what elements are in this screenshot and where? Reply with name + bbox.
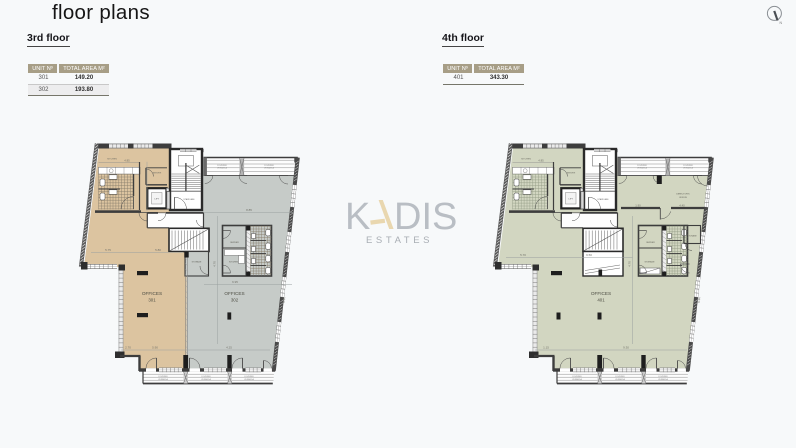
svg-text:VERANDA: VERANDA bbox=[637, 167, 648, 170]
svg-text:VERANDA: VERANDA bbox=[201, 378, 211, 381]
svg-text:5.80: 5.80 bbox=[155, 248, 161, 252]
svg-text:DIRECTOR'S: DIRECTOR'S bbox=[676, 193, 690, 195]
svg-text:VERANDA: VERANDA bbox=[158, 378, 168, 381]
svg-text:5.75: 5.75 bbox=[105, 248, 111, 252]
svg-text:301: 301 bbox=[148, 298, 156, 303]
svg-text:4.85: 4.85 bbox=[538, 158, 544, 162]
svg-text:STORAGE: STORAGE bbox=[687, 234, 697, 237]
svg-text:COVERED: COVERED bbox=[201, 376, 211, 378]
svg-text:COVERED: COVERED bbox=[264, 165, 275, 167]
svg-text:COVERED: COVERED bbox=[572, 376, 582, 378]
svg-text:4.70: 4.70 bbox=[213, 261, 217, 267]
svg-text:COVERED: COVERED bbox=[244, 376, 254, 378]
svg-text:VERANDA: VERANDA bbox=[572, 378, 582, 381]
svg-text:STAIRCASE: STAIRCASE bbox=[597, 198, 609, 201]
svg-text:4.70: 4.70 bbox=[628, 261, 632, 267]
svg-text:VERANDA: VERANDA bbox=[217, 167, 228, 170]
svg-text:LIFT: LIFT bbox=[569, 198, 574, 200]
svg-text:VERANDA: VERANDA bbox=[683, 167, 694, 170]
svg-text:KITCHEN: KITCHEN bbox=[107, 158, 117, 160]
svg-text:SERVER: SERVER bbox=[230, 242, 239, 244]
svg-text:302: 302 bbox=[231, 298, 239, 303]
svg-text:4.40: 4.40 bbox=[679, 204, 685, 208]
svg-text:VERANDA: VERANDA bbox=[264, 167, 275, 170]
svg-text:VERANDA: VERANDA bbox=[615, 378, 625, 381]
svg-text:6.90: 6.90 bbox=[697, 296, 702, 303]
svg-text:1.90: 1.90 bbox=[635, 204, 641, 208]
svg-text:VERANDA: VERANDA bbox=[244, 378, 254, 381]
svg-text:COVERED: COVERED bbox=[217, 165, 228, 167]
svg-text:COVERED: COVERED bbox=[637, 165, 648, 167]
svg-text:5.90: 5.90 bbox=[152, 346, 158, 350]
svg-text:COVERED: COVERED bbox=[683, 165, 694, 167]
svg-text:COVERED: COVERED bbox=[615, 376, 625, 378]
svg-text:6.95: 6.95 bbox=[232, 280, 238, 284]
svg-text:STAIRCASE: STAIRCASE bbox=[183, 198, 195, 201]
svg-text:2.70: 2.70 bbox=[125, 346, 131, 350]
svg-text:1.15: 1.15 bbox=[543, 346, 549, 350]
svg-text:KITCHEN: KITCHEN bbox=[521, 158, 531, 160]
svg-text:SERVER: SERVER bbox=[567, 173, 576, 175]
svg-text:6.90: 6.90 bbox=[282, 296, 287, 303]
svg-text:SERVER: SERVER bbox=[646, 242, 655, 244]
svg-text:COVERED: COVERED bbox=[658, 376, 668, 378]
svg-text:9.30: 9.30 bbox=[623, 346, 629, 350]
svg-text:OFFICES: OFFICES bbox=[224, 291, 244, 296]
svg-text:STORAGE: STORAGE bbox=[644, 261, 655, 264]
svg-text:COVERED: COVERED bbox=[158, 376, 168, 378]
svg-text:9.50: 9.50 bbox=[586, 253, 592, 257]
svg-text:8.85: 8.85 bbox=[246, 208, 252, 212]
svg-text:LIFT: LIFT bbox=[155, 198, 160, 200]
svg-text:KITCHEN: KITCHEN bbox=[229, 262, 239, 264]
svg-text:OFFICE: OFFICE bbox=[679, 197, 688, 199]
svg-text:STORAGE: STORAGE bbox=[192, 260, 202, 263]
svg-text:VERANDA: VERANDA bbox=[658, 378, 668, 381]
svg-text:401: 401 bbox=[597, 298, 605, 303]
svg-text:SERVER: SERVER bbox=[153, 173, 162, 175]
svg-text:5.70: 5.70 bbox=[520, 253, 526, 257]
svg-text:OFFICES: OFFICES bbox=[591, 291, 611, 296]
svg-text:4.85: 4.85 bbox=[124, 158, 130, 162]
svg-text:4.25: 4.25 bbox=[226, 346, 232, 350]
svg-text:OFFICES: OFFICES bbox=[142, 291, 162, 296]
